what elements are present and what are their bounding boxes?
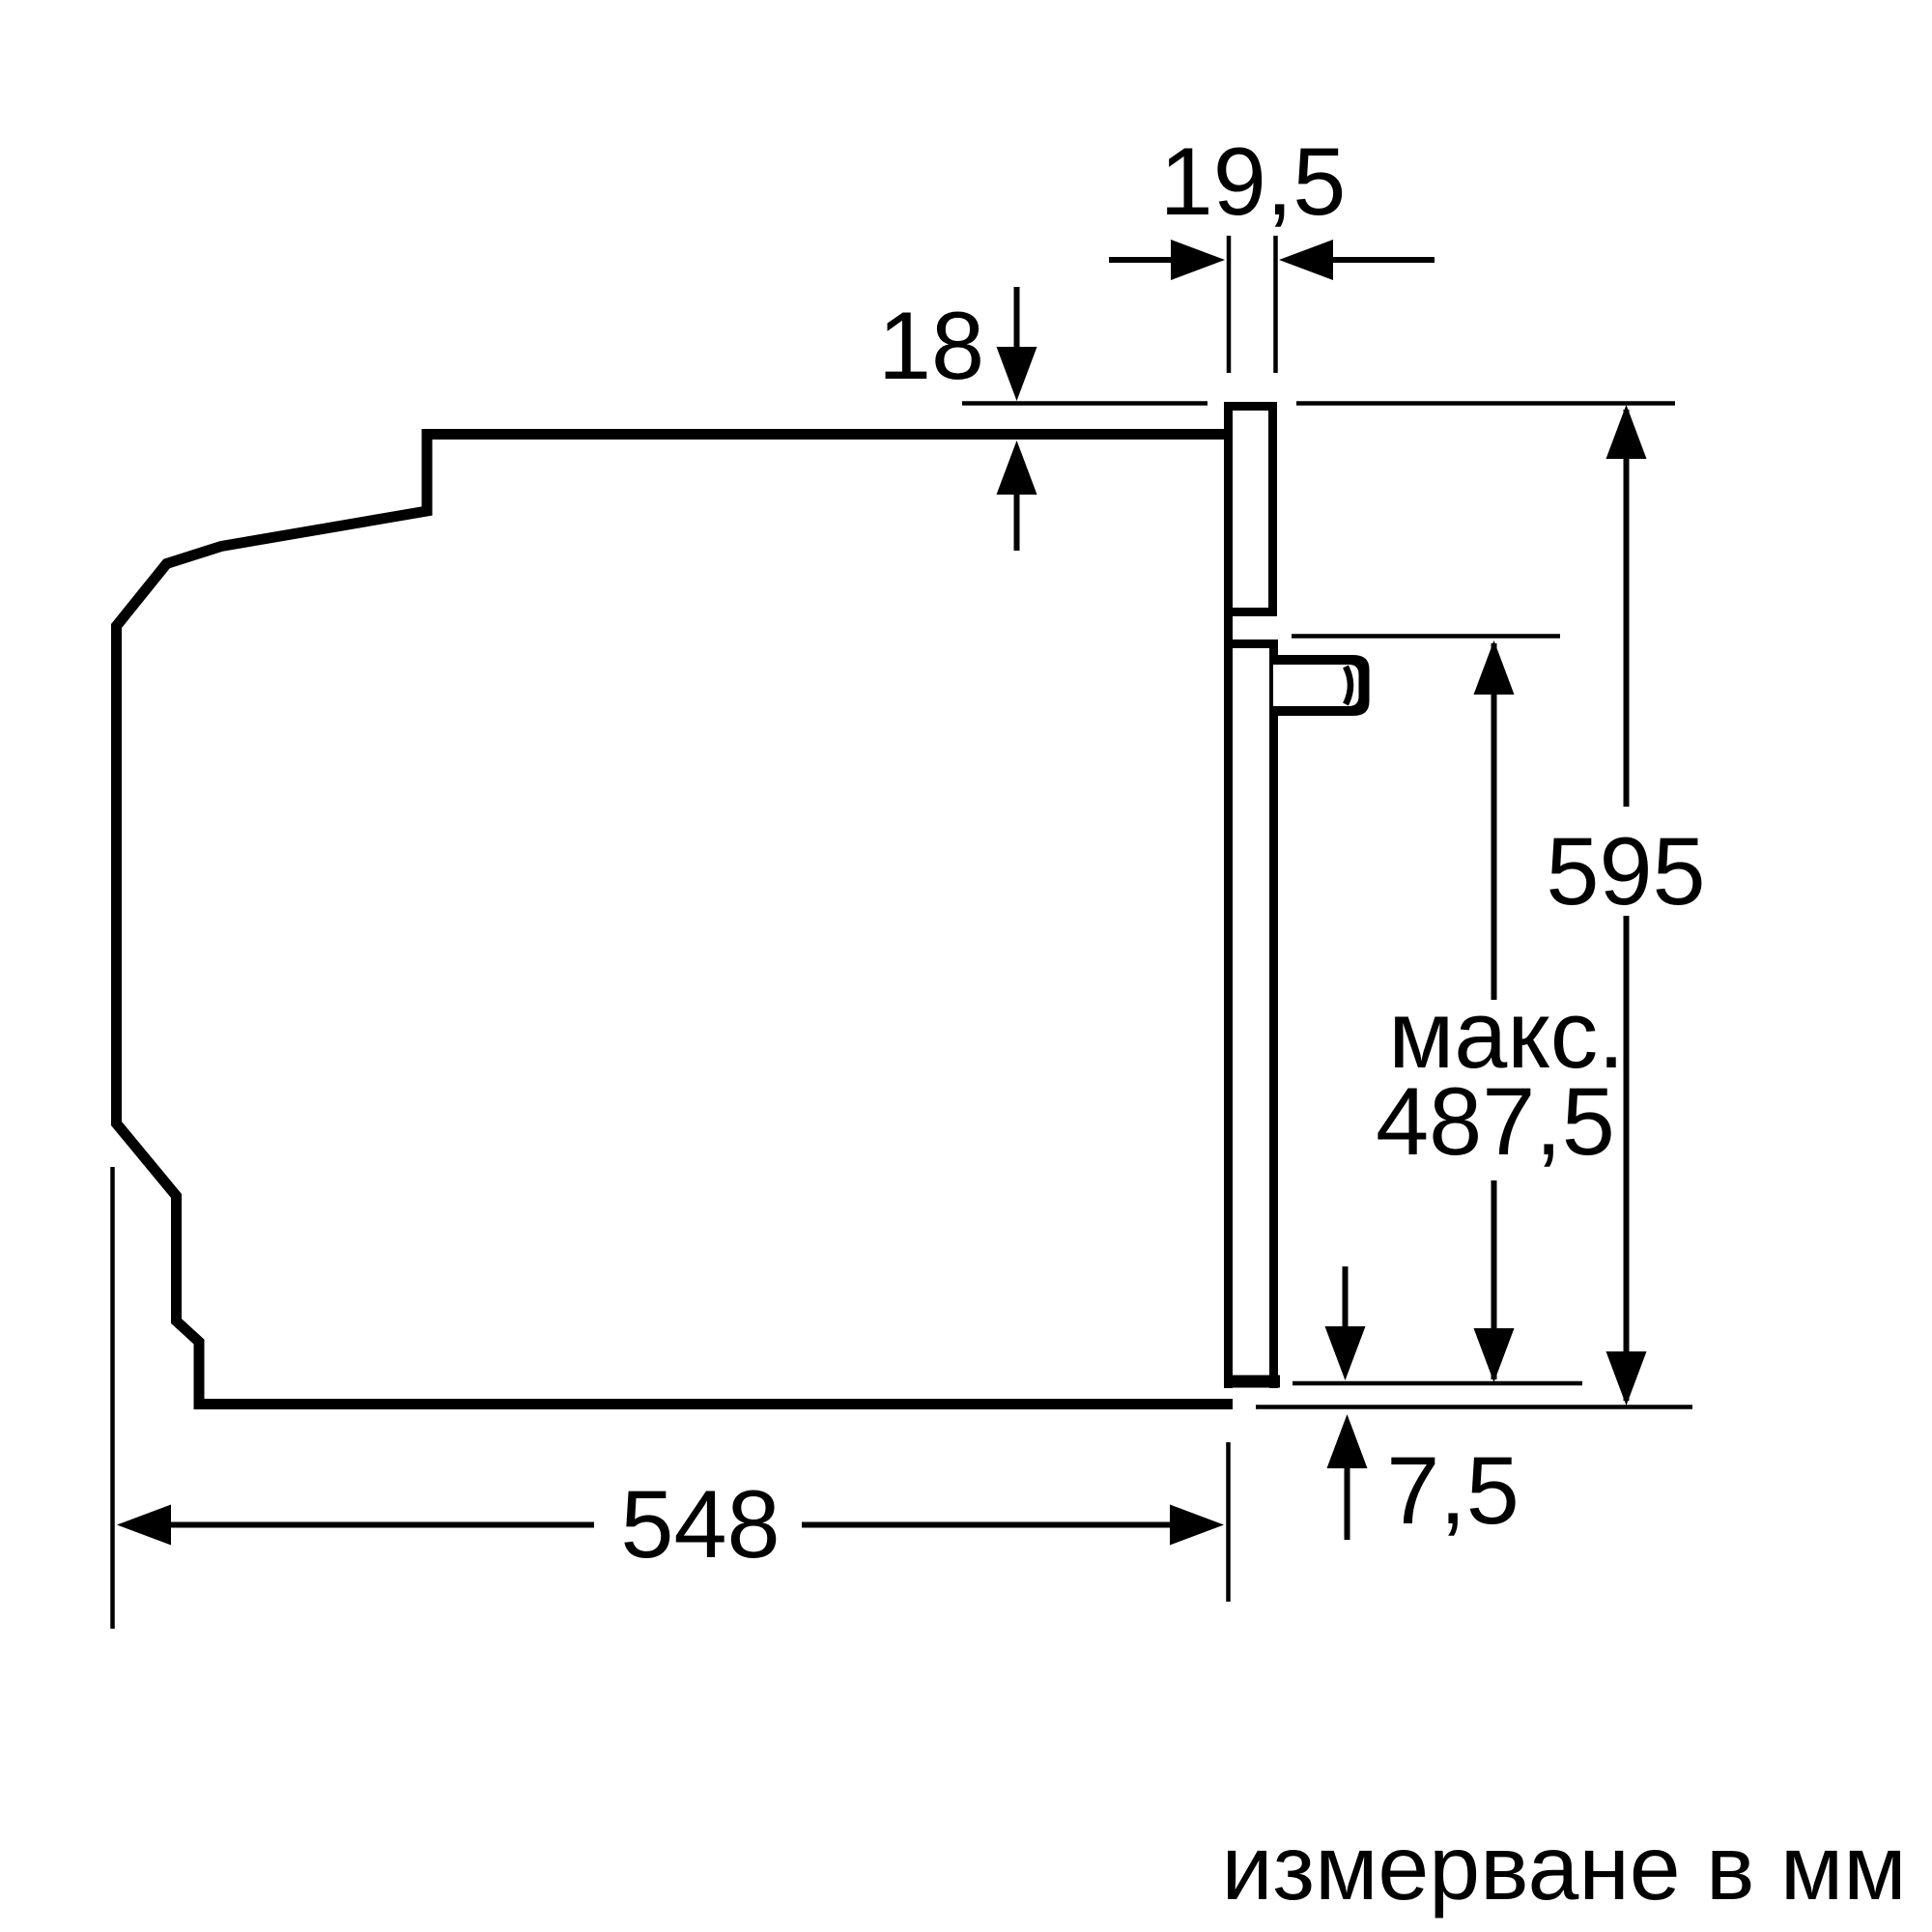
svg-text:595: 595: [1546, 817, 1705, 924]
svg-text:18: 18: [878, 292, 984, 399]
svg-text:измерване в мм: измерване в мм: [1221, 1817, 1906, 1919]
svg-text:19,5: 19,5: [1160, 128, 1347, 235]
svg-text:487,5: 487,5: [1376, 1067, 1615, 1175]
svg-text:548: 548: [620, 1470, 780, 1577]
svg-text:7,5: 7,5: [1386, 1436, 1520, 1544]
